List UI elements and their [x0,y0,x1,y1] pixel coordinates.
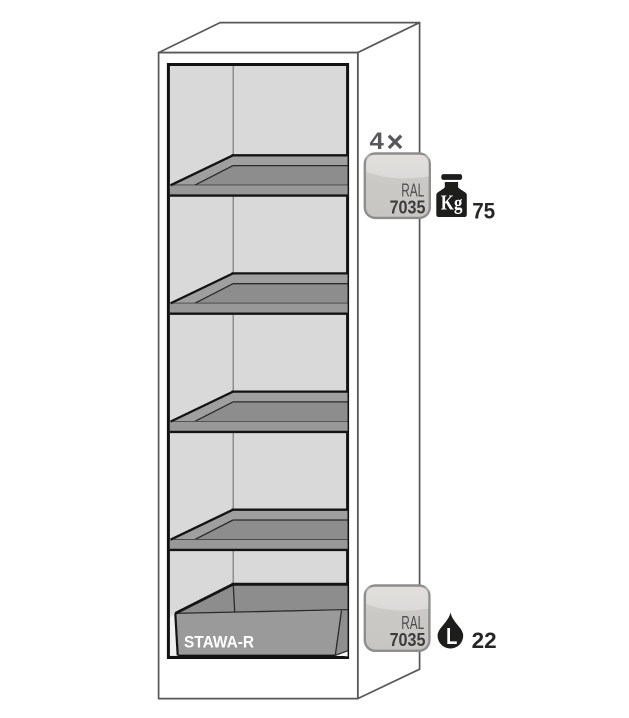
svg-text:4: 4 [370,128,385,155]
svg-text:7035: 7035 [390,196,426,217]
svg-text:22: 22 [472,628,497,653]
svg-text:75: 75 [472,199,495,224]
svg-text:STAWA-R: STAWA-R [184,634,254,652]
svg-text:L: L [446,623,457,649]
svg-text:7035: 7035 [390,629,426,650]
svg-text:Kg: Kg [441,190,463,214]
